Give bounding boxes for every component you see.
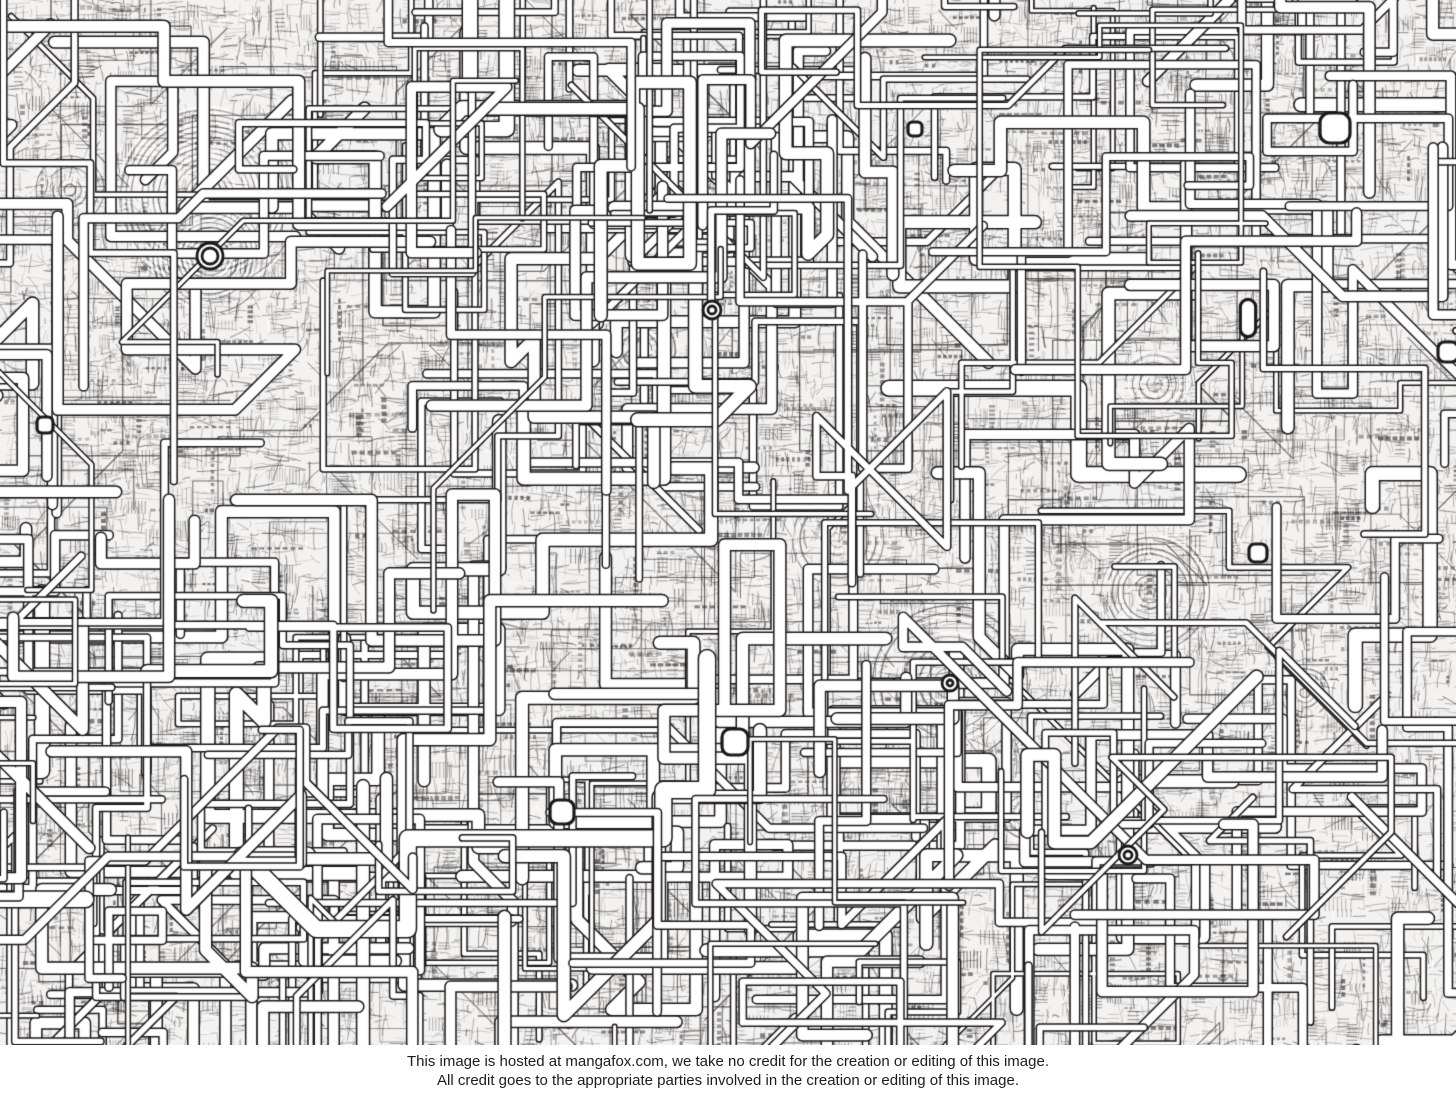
artwork-container xyxy=(0,0,1456,1045)
credit-line-1: This image is hosted at mangafox.com, we… xyxy=(407,1052,1049,1071)
hosting-credit-footer: This image is hosted at mangafox.com, we… xyxy=(0,1045,1456,1096)
manga-artwork-image xyxy=(0,0,1456,1045)
image-hosting-page: This image is hosted at mangafox.com, we… xyxy=(0,0,1456,1096)
credit-line-2: All credit goes to the appropriate parti… xyxy=(437,1071,1019,1090)
